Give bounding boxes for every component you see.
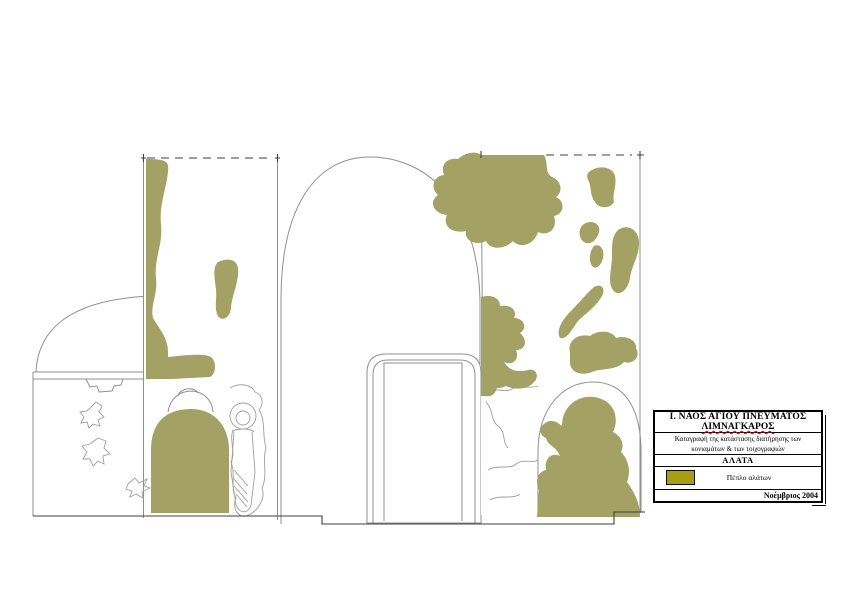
- description-line-2: κονιαμάτων & των τοιχογραφιών: [691, 444, 784, 454]
- title-block: Ι. ΝΑΟΣ ΑΓΙΟΥ ΠΝΕΥΜΑΤΟΣ ΛΙΜΝΑΓΚΑΡΟΣ Κατα…: [653, 410, 823, 503]
- location-name: ΛΙΜΝΑΓΚΑΡΟΣ: [702, 422, 775, 432]
- description-line-1: Καταγραφή της κατάστασης διατήρησης των: [675, 434, 802, 444]
- plaster-loss-squiggle-2: [82, 438, 110, 466]
- legend-swatch: [666, 470, 695, 485]
- salt-patch-niche: [151, 409, 229, 513]
- legend-label: Πέπλο αλάτων: [695, 473, 821, 482]
- church-name: Ι. ΝΑΟΣ ΑΓΙΟΥ ΠΝΕΥΜΑΤΟΣ: [670, 412, 807, 422]
- title-block-section: ΑΛΑΤΑ: [655, 455, 821, 467]
- title-block-title: Ι. ΝΑΟΣ ΑΓΙΟΥ ΠΝΕΥΜΑΤΟΣ ΛΙΜΝΑΓΚΑΡΟΣ: [655, 412, 821, 433]
- section-header: ΑΛΑΤΑ: [722, 455, 754, 465]
- left-dome-arc: [36, 296, 152, 372]
- sheet-date: Νοέμβριος 2004: [764, 491, 821, 500]
- legend-row: Πέπλο αλάτων: [655, 467, 821, 490]
- title-block-description: Καταγραφή της κατάστασης διατήρησης των …: [655, 433, 821, 455]
- date-row: Νοέμβριος 2004: [655, 490, 821, 501]
- corbel-detail: [86, 379, 123, 392]
- sanctuary-door: [367, 354, 481, 523]
- plaster-loss-squiggle-1: [80, 402, 104, 428]
- church-elevation-sheet: Ι. ΝΑΟΣ ΑΓΙΟΥ ΠΝΕΥΜΑΤΟΣ ΛΙΜΝΑΓΚΑΡΟΣ Κατα…: [0, 0, 842, 595]
- elevation-drawing: [0, 0, 842, 595]
